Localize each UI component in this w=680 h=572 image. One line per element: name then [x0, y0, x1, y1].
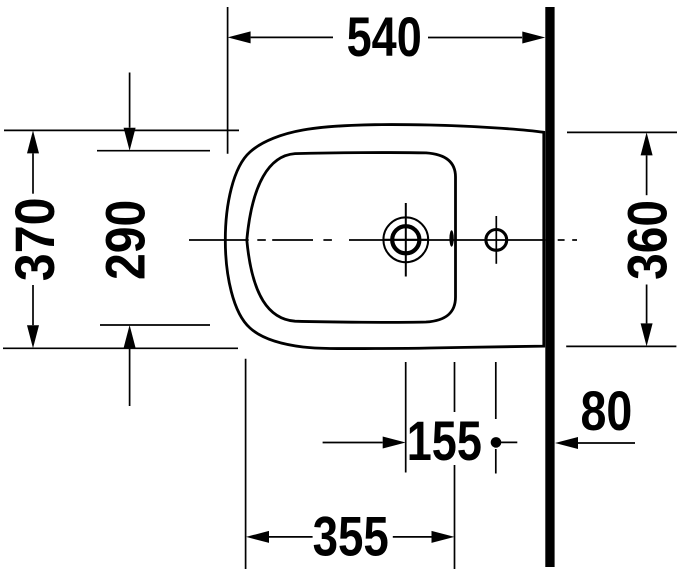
- svg-text:80: 80: [581, 379, 633, 442]
- svg-text:540: 540: [347, 5, 422, 68]
- svg-text:290: 290: [93, 200, 156, 280]
- svg-text:355: 355: [313, 504, 389, 567]
- svg-text:360: 360: [616, 200, 679, 280]
- svg-text:155: 155: [407, 409, 482, 472]
- svg-text:370: 370: [3, 197, 66, 281]
